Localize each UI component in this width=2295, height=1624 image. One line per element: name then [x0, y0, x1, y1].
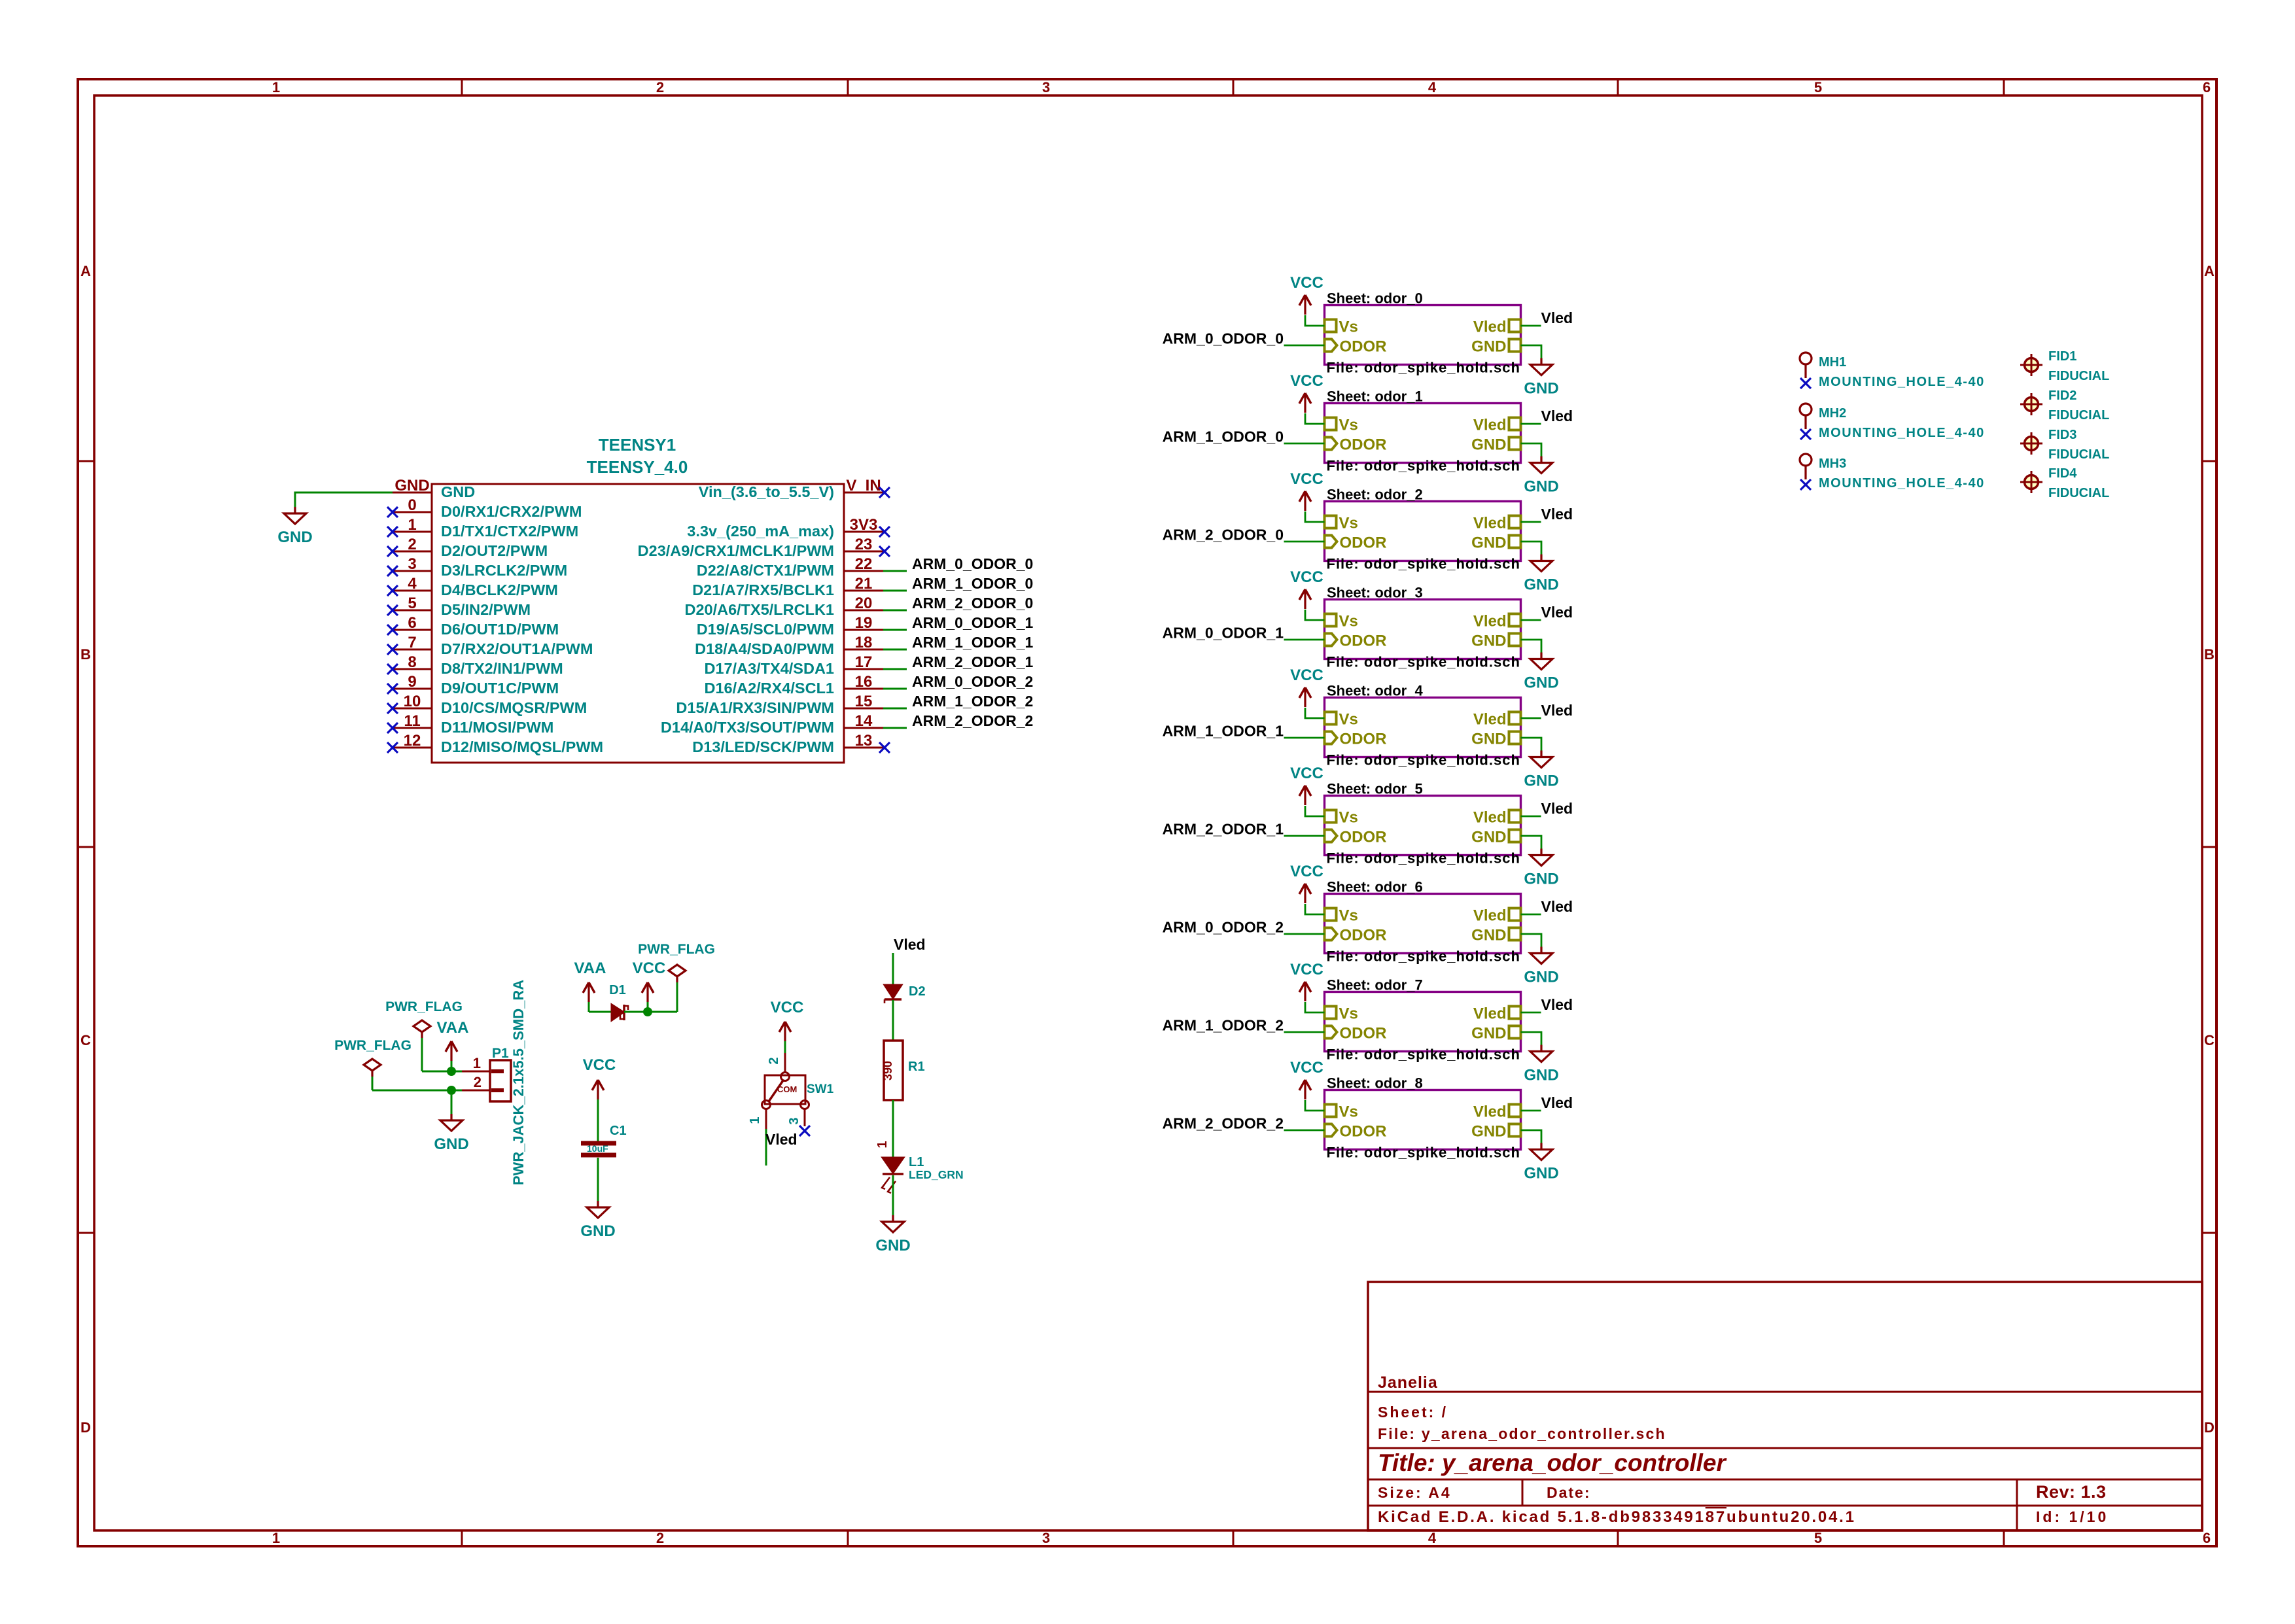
svg-text:Size: A4: Size: A4	[1378, 1484, 1452, 1501]
svg-text:3: 3	[787, 1117, 801, 1124]
svg-text:A: A	[80, 263, 91, 279]
svg-text:6: 6	[2203, 1530, 2211, 1546]
svg-text:D13/LED/SCK/PWM: D13/LED/SCK/PWM	[692, 738, 834, 755]
svg-text:MH2: MH2	[1819, 406, 1846, 421]
svg-text:D16/A2/RX4/SCL1: D16/A2/RX4/SCL1	[704, 680, 834, 697]
svg-text:FID2: FID2	[2048, 389, 2076, 403]
svg-text:8: 8	[408, 653, 416, 671]
svg-text:Sheet: odor_8: Sheet: odor_8	[1327, 1075, 1423, 1092]
svg-text:3: 3	[408, 555, 416, 573]
svg-text:13: 13	[855, 732, 873, 750]
svg-text:D11/MOSI/PWM: D11/MOSI/PWM	[441, 719, 553, 736]
svg-text:VCC: VCC	[633, 959, 666, 977]
svg-text:D4/BCLK2/PWM: D4/BCLK2/PWM	[441, 581, 558, 598]
svg-text:6: 6	[2203, 79, 2211, 95]
svg-text:MH3: MH3	[1819, 457, 1846, 471]
svg-text:D2: D2	[909, 984, 926, 999]
svg-text:D: D	[2204, 1419, 2215, 1436]
svg-text:FIDUCIAL: FIDUCIAL	[2048, 486, 2109, 500]
svg-text:D5/IN2/PWM: D5/IN2/PWM	[441, 601, 531, 618]
svg-text:Sheet: /: Sheet: /	[1378, 1404, 1448, 1421]
svg-text:5: 5	[408, 595, 416, 612]
svg-text:MOUNTING_HOLE_4-40: MOUNTING_HOLE_4-40	[1819, 375, 1985, 389]
svg-text:390: 390	[881, 1061, 894, 1080]
svg-text:5: 5	[1814, 1530, 1822, 1546]
svg-text:VAA: VAA	[574, 959, 606, 977]
svg-text:2: 2	[767, 1057, 781, 1064]
svg-text:ARM_0_ODOR_0: ARM_0_ODOR_0	[1163, 330, 1284, 347]
svg-text:D0/RX1/CRX2/PWM: D0/RX1/CRX2/PWM	[441, 503, 582, 520]
svg-text:Janelia: Janelia	[1378, 1373, 1438, 1392]
svg-text:R1: R1	[908, 1060, 925, 1074]
svg-text:D10/CS/MQSR/PWM: D10/CS/MQSR/PWM	[441, 699, 587, 716]
svg-text:VCC: VCC	[583, 1056, 616, 1074]
svg-text:ARM_1_ODOR_1: ARM_1_ODOR_1	[912, 634, 1034, 651]
svg-text:KiCad E.D.A. kicad 5.1.8-db98: KiCad E.D.A. kicad 5.1.8-db983349187ubun…	[1378, 1508, 1856, 1526]
svg-text:ARM_2_ODOR_1: ARM_2_ODOR_1	[912, 653, 1034, 670]
svg-text:1: 1	[408, 516, 416, 534]
svg-text:Date:: Date:	[1547, 1484, 1591, 1501]
svg-text:6: 6	[408, 614, 416, 632]
svg-text:12: 12	[404, 732, 421, 750]
svg-text:1: 1	[272, 79, 280, 95]
svg-text:VAA: VAA	[437, 1019, 469, 1037]
svg-text:ARM_0_ODOR_2: ARM_0_ODOR_2	[1163, 919, 1284, 936]
svg-text:Sheet: odor_2: Sheet: odor_2	[1327, 487, 1423, 503]
svg-text:Rev: 1.3: Rev: 1.3	[2036, 1482, 2107, 1502]
svg-text:3: 3	[1042, 79, 1050, 95]
svg-text:16: 16	[855, 673, 873, 691]
svg-text:D23/A9/CRX1/MCLK1/PWM: D23/A9/CRX1/MCLK1/PWM	[638, 542, 834, 559]
svg-text:D12/MISO/MQSL/PWM: D12/MISO/MQSL/PWM	[441, 738, 603, 755]
svg-text:File: y_arena_odor_controller.: File: y_arena_odor_controller.sch	[1378, 1425, 1666, 1442]
svg-text:D20/A6/TX5/LRCLK1: D20/A6/TX5/LRCLK1	[684, 601, 834, 618]
svg-text:7: 7	[408, 634, 416, 651]
svg-text:17: 17	[855, 653, 873, 671]
svg-text:ARM_1_ODOR_0: ARM_1_ODOR_0	[912, 575, 1033, 592]
svg-text:FIDUCIAL: FIDUCIAL	[2048, 408, 2109, 423]
svg-text:D22/A8/CTX1/PWM: D22/A8/CTX1/PWM	[697, 562, 834, 579]
svg-text:D7/RX2/OUT1A/PWM: D7/RX2/OUT1A/PWM	[441, 640, 593, 657]
svg-text:ARM_0_ODOR_1: ARM_0_ODOR_1	[1163, 625, 1284, 642]
svg-text:Sheet: odor_4: Sheet: odor_4	[1327, 683, 1423, 699]
svg-text:3V3: 3V3	[850, 516, 878, 534]
svg-text:ARM_2_ODOR_0: ARM_2_ODOR_0	[912, 595, 1033, 612]
svg-text:ARM_2_ODOR_2: ARM_2_ODOR_2	[912, 712, 1033, 729]
svg-text:Title: y_arena_odor_controller: Title: y_arena_odor_controller	[1378, 1449, 1727, 1476]
svg-text:D2/OUT2/PWM: D2/OUT2/PWM	[441, 542, 548, 559]
svg-text:3: 3	[1042, 1530, 1050, 1546]
svg-text:L1: L1	[909, 1155, 924, 1169]
svg-text:Sheet: odor_7: Sheet: odor_7	[1327, 977, 1423, 993]
svg-text:V_IN: V_IN	[846, 477, 881, 494]
svg-text:VCC: VCC	[771, 999, 804, 1016]
svg-text:FID4: FID4	[2048, 466, 2077, 481]
svg-text:ARM_0_ODOR_2: ARM_0_ODOR_2	[912, 673, 1033, 690]
svg-text:ARM_1_ODOR_2: ARM_1_ODOR_2	[912, 693, 1033, 710]
svg-text:MH1: MH1	[1819, 355, 1846, 370]
svg-text:22: 22	[855, 555, 873, 573]
svg-text:2: 2	[408, 536, 416, 553]
svg-text:11: 11	[404, 712, 420, 730]
svg-text:1: 1	[473, 1055, 481, 1071]
svg-text:D: D	[80, 1419, 91, 1436]
svg-text:B: B	[80, 646, 91, 663]
svg-text:FIDUCIAL: FIDUCIAL	[2048, 447, 2109, 462]
svg-text:PWR_FLAG: PWR_FLAG	[638, 942, 715, 957]
svg-text:21: 21	[855, 575, 873, 593]
svg-text:Vin_(3.6_to_5.5_V): Vin_(3.6_to_5.5_V)	[699, 483, 834, 500]
svg-text:PWR_FLAG: PWR_FLAG	[385, 999, 463, 1014]
svg-text:D8/TX2/IN1/PWM: D8/TX2/IN1/PWM	[441, 660, 563, 677]
svg-text:4: 4	[408, 575, 417, 593]
svg-text:D6/OUT1D/PWM: D6/OUT1D/PWM	[441, 621, 559, 638]
svg-text:D1: D1	[609, 983, 626, 997]
svg-text:2: 2	[474, 1074, 482, 1090]
svg-text:20: 20	[855, 595, 873, 612]
svg-text:D15/A1/RX3/SIN/PWM: D15/A1/RX3/SIN/PWM	[676, 699, 834, 716]
svg-text:D18/A4/SDA0/PWM: D18/A4/SDA0/PWM	[695, 640, 834, 657]
svg-text:Sheet: odor_5: Sheet: odor_5	[1327, 781, 1423, 797]
svg-text:1: 1	[748, 1116, 762, 1124]
svg-text:D3/LRCLK2/PWM: D3/LRCLK2/PWM	[441, 562, 567, 579]
svg-text:D17/A3/TX4/SDA1: D17/A3/TX4/SDA1	[704, 660, 834, 677]
svg-text:ARM_2_ODOR_2: ARM_2_ODOR_2	[1163, 1115, 1284, 1132]
svg-text:19: 19	[855, 614, 873, 632]
svg-text:Sheet: odor_6: Sheet: odor_6	[1327, 879, 1423, 895]
svg-text:1: 1	[875, 1141, 890, 1148]
svg-text:4: 4	[1428, 1530, 1437, 1546]
svg-text:Vled: Vled	[765, 1131, 797, 1148]
svg-text:D14/A0/TX3/SOUT/PWM: D14/A0/TX3/SOUT/PWM	[661, 719, 834, 736]
svg-text:C: C	[2204, 1032, 2215, 1048]
svg-text:LED_GRN: LED_GRN	[909, 1168, 964, 1181]
svg-text:PWR_FLAG: PWR_FLAG	[334, 1038, 412, 1053]
svg-text:FIDUCIAL: FIDUCIAL	[2048, 369, 2109, 383]
svg-text:MOUNTING_HOLE_4-40: MOUNTING_HOLE_4-40	[1819, 476, 1985, 491]
svg-text:P1: P1	[492, 1046, 509, 1061]
svg-text:GND: GND	[441, 483, 475, 500]
svg-text:D21/A7/RX5/BCLK1: D21/A7/RX5/BCLK1	[692, 581, 834, 598]
svg-text:D9/OUT1C/PWM: D9/OUT1C/PWM	[441, 680, 559, 697]
svg-text:10uF: 10uF	[587, 1143, 608, 1154]
svg-text:1: 1	[272, 1530, 280, 1546]
svg-text:Sheet: odor_0: Sheet: odor_0	[1327, 290, 1423, 307]
svg-text:D1/TX1/CTX2/PWM: D1/TX1/CTX2/PWM	[441, 523, 578, 540]
svg-text:2: 2	[656, 1530, 664, 1546]
svg-text:FID3: FID3	[2048, 428, 2076, 442]
svg-text:ARM_1_ODOR_0: ARM_1_ODOR_0	[1163, 428, 1284, 445]
svg-text:4: 4	[1428, 79, 1437, 95]
svg-text:14: 14	[855, 712, 873, 730]
svg-text:Vled: Vled	[894, 936, 926, 953]
svg-text:9: 9	[408, 673, 416, 691]
svg-text:5: 5	[1814, 79, 1822, 95]
svg-text:TEENSY_4.0: TEENSY_4.0	[587, 457, 688, 477]
svg-text:C: C	[80, 1032, 91, 1048]
svg-text:15: 15	[855, 693, 873, 710]
svg-text:ARM_2_ODOR_1: ARM_2_ODOR_1	[1163, 821, 1284, 838]
svg-text:ARM_1_ODOR_2: ARM_1_ODOR_2	[1163, 1017, 1284, 1034]
svg-text:Sheet: odor_1: Sheet: odor_1	[1327, 389, 1423, 405]
svg-text:A: A	[2204, 263, 2215, 279]
svg-text:0: 0	[408, 496, 416, 514]
svg-text:MOUNTING_HOLE_4-40: MOUNTING_HOLE_4-40	[1819, 426, 1985, 440]
svg-text:D19/A5/SCL0/PWM: D19/A5/SCL0/PWM	[697, 621, 834, 638]
svg-text:Sheet: odor_3: Sheet: odor_3	[1327, 585, 1423, 601]
svg-text:C1: C1	[610, 1124, 627, 1138]
svg-text:GND: GND	[394, 477, 429, 494]
svg-text:SW1: SW1	[807, 1082, 834, 1096]
svg-text:PWR_JACK_2.1x5.5_SMD_RA: PWR_JACK_2.1x5.5_SMD_RA	[510, 980, 527, 1185]
svg-text:ARM_0_ODOR_1: ARM_0_ODOR_1	[912, 614, 1034, 631]
svg-text:2: 2	[656, 79, 664, 95]
svg-text:18: 18	[855, 634, 873, 651]
svg-text:ARM_2_ODOR_0: ARM_2_ODOR_0	[1163, 527, 1284, 544]
svg-text:B: B	[2204, 646, 2215, 663]
svg-text:Id: 1/10: Id: 1/10	[2036, 1508, 2109, 1525]
svg-text:TEENSY1: TEENSY1	[599, 435, 676, 455]
svg-text:3.3v_(250_mA_max): 3.3v_(250_mA_max)	[687, 523, 834, 540]
svg-text:FID1: FID1	[2048, 349, 2076, 364]
svg-text:ARM_0_ODOR_0: ARM_0_ODOR_0	[912, 555, 1033, 572]
svg-text:ARM_1_ODOR_1: ARM_1_ODOR_1	[1163, 723, 1284, 740]
svg-text:23: 23	[855, 536, 873, 553]
svg-text:10: 10	[404, 693, 421, 710]
svg-text:COM: COM	[777, 1084, 797, 1094]
